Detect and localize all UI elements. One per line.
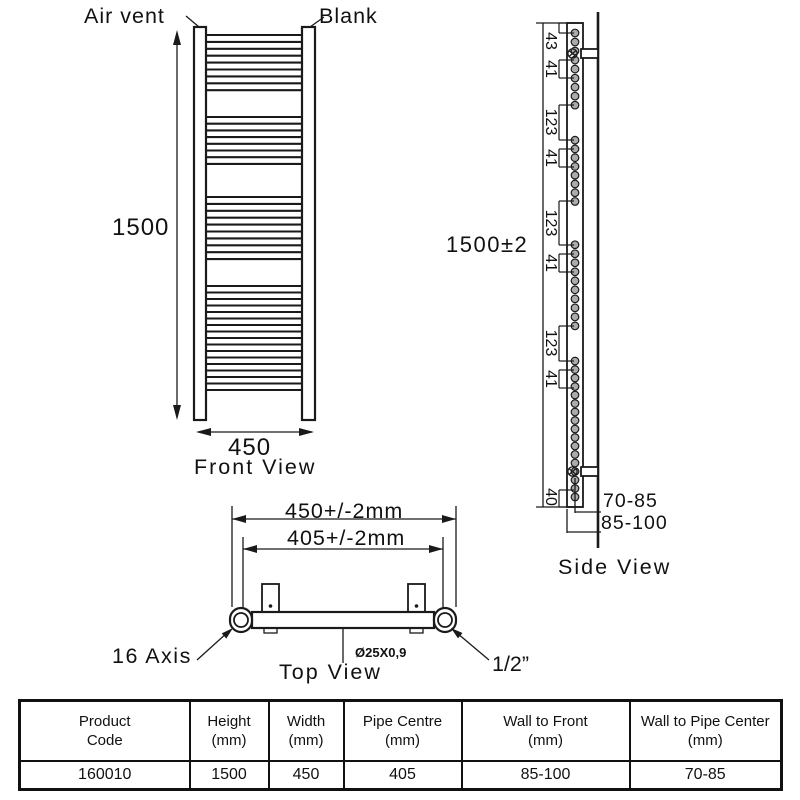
arrow-right-icon	[442, 515, 456, 523]
side-tube-circle	[571, 65, 579, 73]
axis-size-label: 16 Axis	[112, 645, 192, 668]
spec-header-cell: Pipe Centre (mm)	[344, 701, 462, 762]
segment-spacing-label: 41	[542, 60, 559, 78]
side-tube-circle	[571, 83, 579, 91]
arrow-left-icon	[196, 428, 211, 436]
air-vent-label: Air vent	[84, 5, 165, 28]
left-axis-circle	[234, 613, 248, 627]
side-tube-circle	[571, 295, 579, 303]
segment-spacing-label: 123	[542, 330, 559, 357]
wall-to-pipe-dimension-label: 70-85	[603, 491, 658, 511]
side-tube-circle	[571, 425, 579, 433]
side-tube-circle	[571, 459, 579, 467]
air-vent-leader-line	[186, 16, 199, 27]
side-view-caption: Side View	[558, 556, 671, 579]
connection-size-label: 1/2”	[492, 653, 529, 676]
spec-header-cell: Height (mm)	[190, 701, 269, 762]
front-height-dimension-label: 1500	[112, 215, 169, 240]
side-tube-circle	[571, 408, 579, 416]
side-tube-circle	[571, 38, 579, 46]
radiator-technical-drawing: 434112341123411234140	[0, 0, 800, 800]
side-tube-circle	[571, 154, 579, 162]
axis-leader-line	[197, 632, 228, 660]
spec-value-cell: 70-85	[630, 761, 782, 790]
spec-header-cell: Wall to Pipe Center (mm)	[630, 701, 782, 762]
side-tube-circle	[571, 451, 579, 459]
side-height-dimension-label: 1500±2	[446, 233, 528, 256]
spec-table-data-row: 160010150045040585-10070-85	[20, 761, 782, 790]
side-tube-circle	[571, 442, 579, 450]
pipe-centre-dimension-label: 405+/-2mm	[287, 527, 405, 550]
front-left-rail	[194, 27, 206, 420]
side-tube-circle	[571, 313, 579, 321]
front-view-caption: Front View	[194, 456, 316, 479]
arrow-right-icon	[429, 545, 443, 553]
side-tube-circle	[571, 92, 579, 100]
segment-spacing-label: 43	[542, 32, 559, 50]
wall-to-front-dimension-label: 85-100	[601, 513, 668, 533]
arrow-left-icon	[243, 545, 257, 553]
top-view-caption: Top View	[279, 661, 382, 684]
side-tube-circle	[571, 171, 579, 179]
segment-spacing-label: 123	[542, 210, 559, 237]
side-tube-circle	[571, 304, 579, 312]
segment-spacing-label: 41	[542, 254, 559, 272]
right-connection-circle	[438, 613, 452, 627]
segment-spacing-label: 40	[542, 488, 559, 506]
spec-table: Product CodeHeight (mm)Width (mm)Pipe Ce…	[18, 699, 783, 791]
arrow-down-icon	[173, 405, 181, 420]
spec-value-cell: 1500	[190, 761, 269, 790]
side-tube-circle	[571, 434, 579, 442]
side-tube-circle	[571, 286, 579, 294]
spec-value-cell: 85-100	[462, 761, 630, 790]
pipe-diameter-label: Ø25X0,9	[355, 646, 406, 660]
side-tube-circle	[571, 374, 579, 382]
spec-header-cell: Product Code	[20, 701, 190, 762]
side-view-drawing: 434112341123411234140	[536, 12, 601, 548]
side-tube-circle	[571, 259, 579, 267]
side-tube-circle	[571, 400, 579, 408]
spec-value-cell: 160010	[20, 761, 190, 790]
segment-spacing-label: 41	[542, 149, 559, 167]
segment-spacing-label: 41	[542, 370, 559, 388]
spec-table-header-row: Product CodeHeight (mm)Width (mm)Pipe Ce…	[20, 701, 782, 762]
side-tube-circle	[571, 391, 579, 399]
drawing-linework: 434112341123411234140	[0, 0, 800, 800]
side-tube-circle	[571, 180, 579, 188]
front-rung-bars	[206, 35, 302, 390]
connection-leader-line	[457, 633, 489, 660]
arrow-left-icon	[232, 515, 246, 523]
blank-label: Blank	[319, 5, 378, 28]
front-view-drawing	[173, 16, 324, 436]
arrow-up-icon	[173, 30, 181, 45]
top-view-tube-body	[252, 612, 434, 628]
spec-value-cell: 450	[269, 761, 344, 790]
spec-header-cell: Wall to Front (mm)	[462, 701, 630, 762]
side-tube-circle	[571, 417, 579, 425]
side-tube-circle	[571, 383, 579, 391]
front-right-rail	[302, 27, 315, 420]
overall-width-dimension-label: 450+/-2mm	[285, 500, 403, 523]
arrow-right-icon	[299, 428, 314, 436]
spec-header-cell: Width (mm)	[269, 701, 344, 762]
side-tube-circle	[571, 189, 579, 197]
segment-spacing-label: 123	[542, 109, 559, 136]
spec-value-cell: 405	[344, 761, 462, 790]
side-tube-circle	[571, 277, 579, 285]
